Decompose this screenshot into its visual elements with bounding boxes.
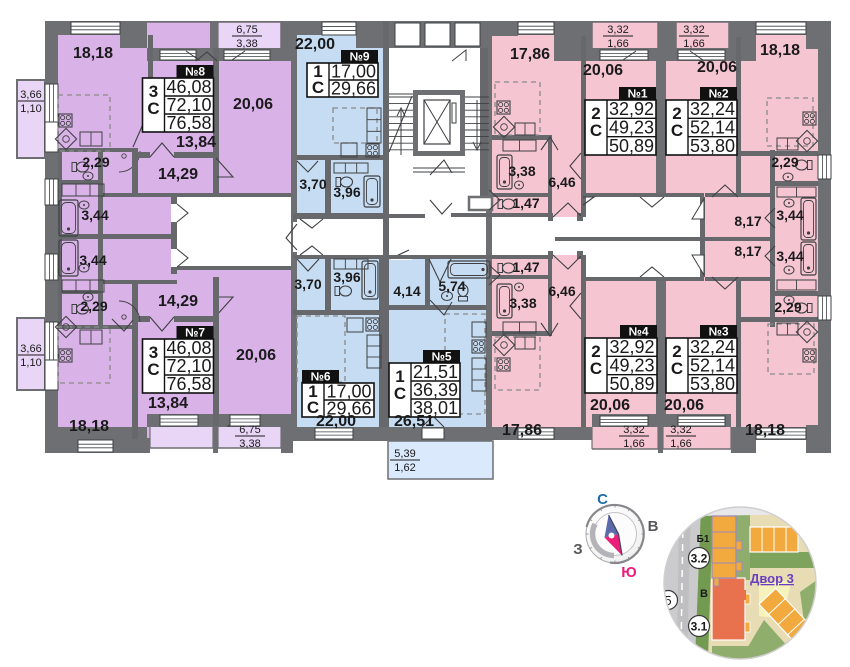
svg-text:Ю: Ю — [621, 564, 636, 581]
svg-text:32,24: 32,24 — [690, 337, 735, 357]
svg-text:14,29: 14,29 — [158, 166, 198, 183]
svg-text:1,66: 1,66 — [607, 38, 628, 50]
svg-text:3,96: 3,96 — [333, 269, 360, 285]
svg-text:49,23: 49,23 — [609, 118, 654, 138]
svg-text:3,70: 3,70 — [299, 176, 326, 192]
svg-text:С: С — [671, 359, 683, 378]
svg-text:3,96: 3,96 — [333, 184, 360, 200]
svg-text:3,38: 3,38 — [236, 38, 257, 50]
svg-text:32,24: 32,24 — [690, 99, 735, 119]
svg-text:3,44: 3,44 — [81, 207, 108, 223]
svg-text:76,58: 76,58 — [166, 374, 211, 394]
svg-text:1,47: 1,47 — [512, 259, 539, 275]
svg-text:6,75: 6,75 — [236, 24, 257, 36]
svg-text:18,18: 18,18 — [760, 42, 800, 59]
svg-text:50,89: 50,89 — [609, 374, 654, 394]
svg-text:6,75: 6,75 — [239, 424, 260, 436]
svg-text:22,00: 22,00 — [295, 36, 335, 53]
svg-text:Двор 3: Двор 3 — [750, 571, 794, 586]
svg-text:С: С — [597, 491, 608, 508]
svg-text:32,92: 32,92 — [609, 99, 654, 119]
svg-text:С: С — [147, 99, 159, 118]
svg-text:18,18: 18,18 — [73, 45, 113, 62]
svg-text:3.1: 3.1 — [691, 620, 708, 634]
svg-text:21,51: 21,51 — [413, 362, 458, 382]
svg-text:52,14: 52,14 — [690, 118, 735, 138]
svg-text:С: С — [590, 359, 602, 378]
svg-text:Б1: Б1 — [697, 534, 710, 545]
svg-text:3,66: 3,66 — [20, 89, 41, 101]
svg-text:С: С — [671, 121, 683, 140]
svg-text:3,38: 3,38 — [509, 295, 536, 311]
svg-text:8,17: 8,17 — [734, 243, 761, 259]
svg-text:3.2: 3.2 — [691, 552, 708, 566]
svg-text:49,23: 49,23 — [609, 356, 654, 376]
svg-text:3,44: 3,44 — [776, 207, 803, 223]
svg-text:14,29: 14,29 — [158, 293, 198, 310]
svg-text:36,39: 36,39 — [413, 380, 458, 400]
svg-text:1,10: 1,10 — [20, 357, 41, 369]
svg-text:3,32: 3,32 — [607, 24, 628, 36]
svg-text:1,47: 1,47 — [512, 195, 539, 211]
svg-text:1,66: 1,66 — [623, 438, 644, 450]
svg-text:50,89: 50,89 — [609, 136, 654, 156]
svg-text:3,32: 3,32 — [683, 24, 704, 36]
svg-text:3,44: 3,44 — [776, 248, 803, 264]
svg-text:2,29: 2,29 — [80, 298, 107, 314]
svg-text:6,46: 6,46 — [548, 174, 575, 190]
svg-text:З: З — [573, 541, 582, 558]
svg-text:6,46: 6,46 — [548, 283, 575, 299]
svg-text:20,06: 20,06 — [664, 397, 704, 414]
svg-text:18,18: 18,18 — [745, 422, 785, 439]
svg-text:С: С — [147, 360, 159, 379]
svg-text:52,14: 52,14 — [690, 356, 735, 376]
svg-text:С: С — [312, 78, 324, 97]
svg-text:22,00: 22,00 — [316, 413, 356, 430]
svg-text:3,70: 3,70 — [294, 276, 321, 292]
svg-text:С: С — [590, 121, 602, 140]
svg-text:2,29: 2,29 — [82, 154, 109, 170]
svg-text:4,14: 4,14 — [393, 283, 420, 299]
svg-text:26,51: 26,51 — [394, 413, 434, 430]
svg-text:1,62: 1,62 — [394, 462, 415, 474]
svg-text:46,08: 46,08 — [166, 338, 211, 358]
svg-text:32,92: 32,92 — [609, 337, 654, 357]
svg-text:1,10: 1,10 — [20, 103, 41, 115]
svg-text:53,80: 53,80 — [690, 374, 735, 394]
svg-text:13,84: 13,84 — [176, 134, 216, 151]
svg-text:3,44: 3,44 — [79, 252, 106, 268]
svg-text:3,38: 3,38 — [239, 438, 260, 450]
svg-text:5,74: 5,74 — [438, 278, 465, 294]
svg-text:17,86: 17,86 — [502, 422, 542, 439]
svg-text:20,06: 20,06 — [233, 96, 273, 113]
svg-text:20,06: 20,06 — [583, 62, 623, 79]
svg-text:2,29: 2,29 — [771, 154, 798, 170]
svg-text:76,58: 76,58 — [166, 113, 211, 133]
svg-text:53,80: 53,80 — [690, 136, 735, 156]
svg-text:5,39: 5,39 — [394, 448, 415, 460]
svg-text:17,86: 17,86 — [510, 46, 550, 63]
svg-text:13,84: 13,84 — [148, 395, 188, 412]
svg-text:18,18: 18,18 — [69, 418, 109, 435]
svg-text:20,06: 20,06 — [236, 347, 276, 364]
svg-text:20,06: 20,06 — [697, 59, 737, 76]
svg-text:20,06: 20,06 — [590, 397, 630, 414]
svg-text:72,10: 72,10 — [166, 95, 211, 115]
svg-text:8,17: 8,17 — [734, 213, 761, 229]
svg-text:В: В — [700, 588, 708, 600]
svg-text:В: В — [648, 518, 659, 535]
svg-text:1,66: 1,66 — [683, 38, 704, 50]
svg-text:1,66: 1,66 — [670, 438, 691, 450]
svg-text:29,66: 29,66 — [331, 79, 376, 99]
svg-text:С: С — [394, 384, 406, 403]
svg-text:2,29: 2,29 — [774, 299, 801, 315]
svg-text:46,08: 46,08 — [166, 77, 211, 97]
svg-text:3,38: 3,38 — [508, 163, 535, 179]
svg-text:3,32: 3,32 — [670, 424, 691, 436]
svg-text:3,32: 3,32 — [623, 424, 644, 436]
svg-text:72,10: 72,10 — [166, 356, 211, 376]
svg-text:3,66: 3,66 — [20, 343, 41, 355]
